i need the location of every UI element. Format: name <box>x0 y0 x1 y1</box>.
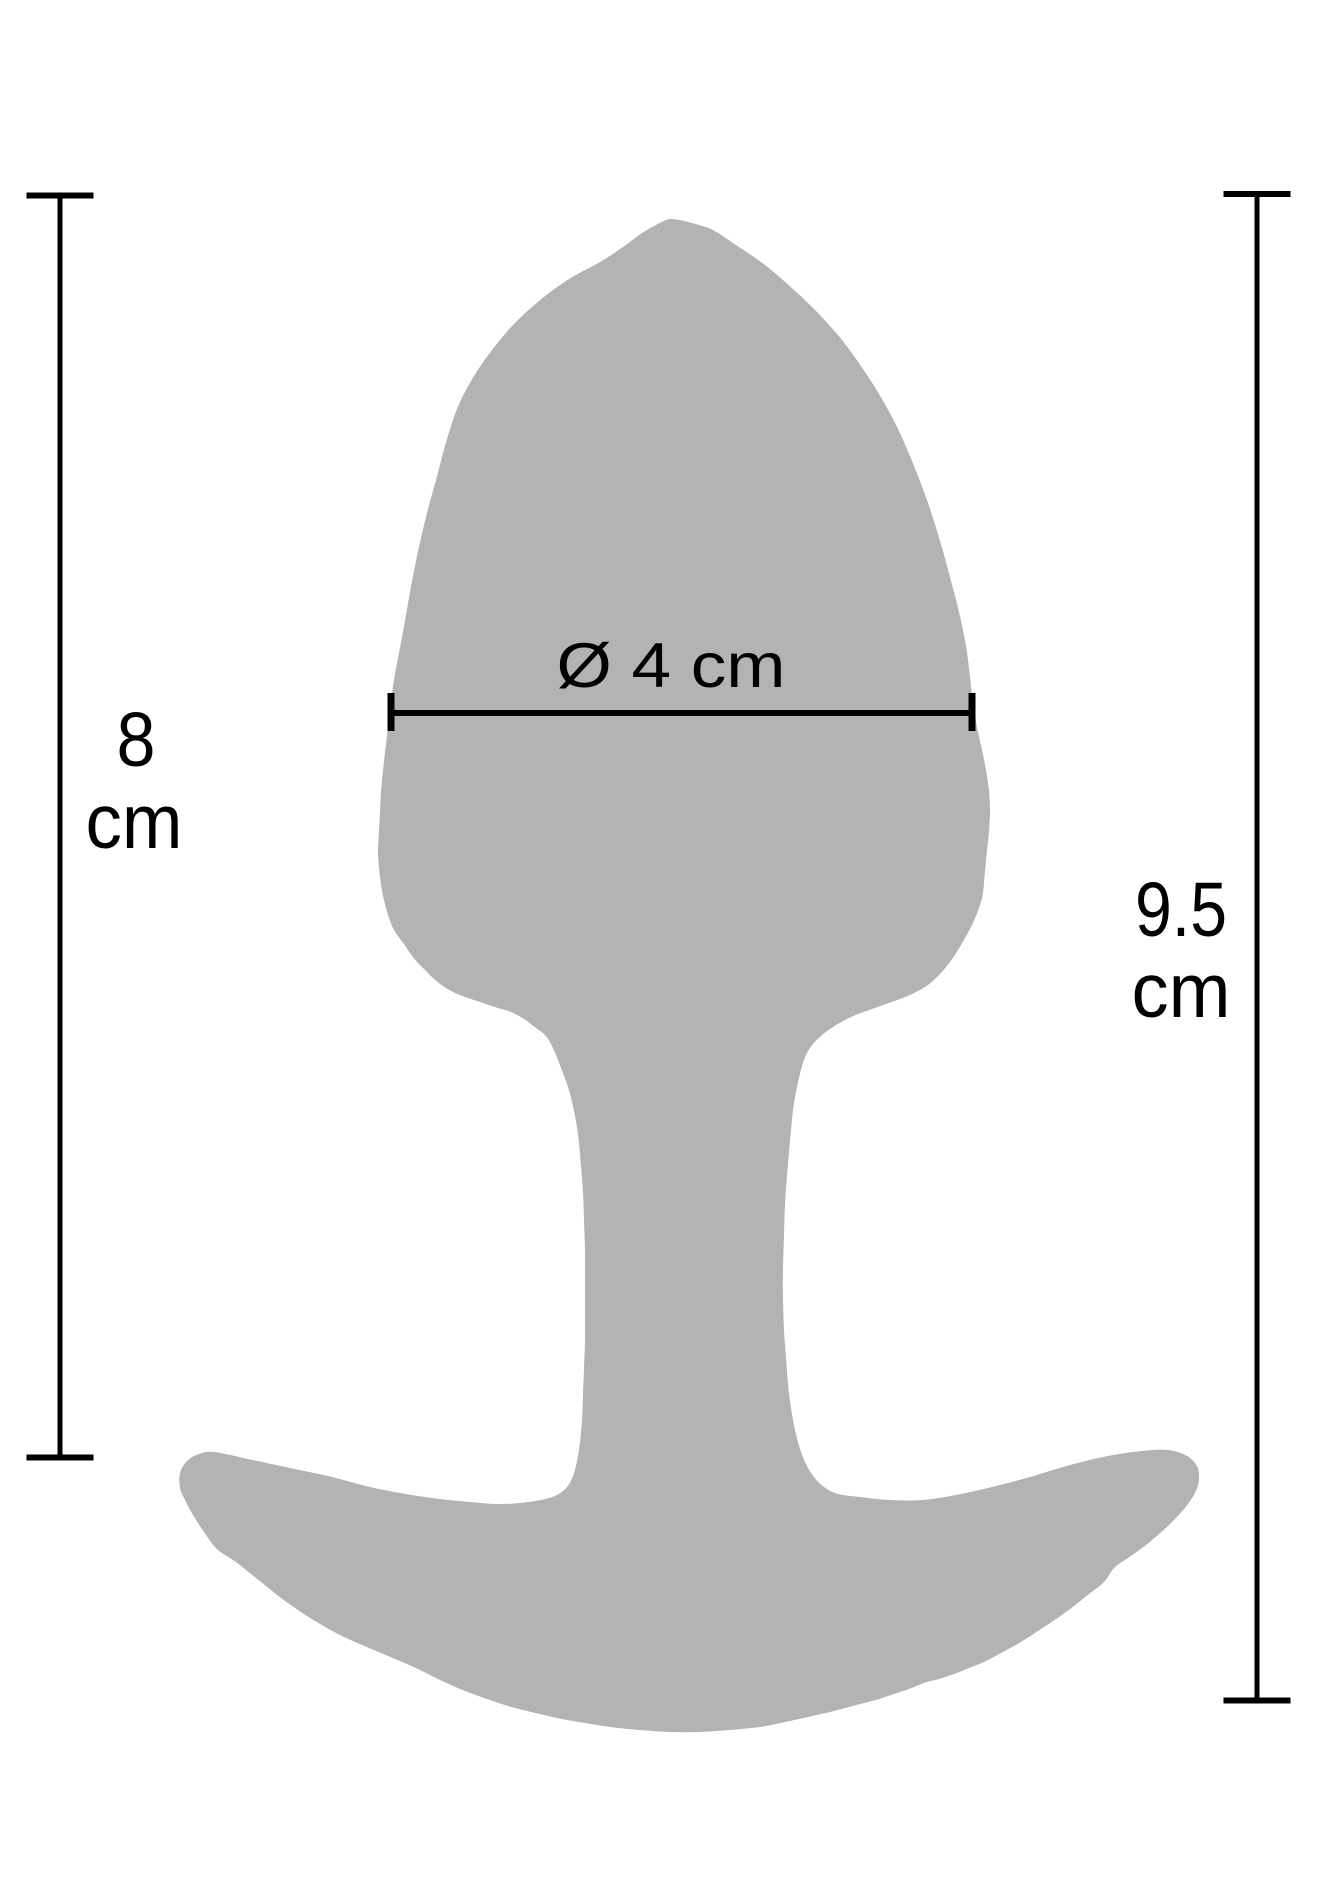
svg-text:cm: cm <box>1132 948 1231 1034</box>
svg-text:8: 8 <box>117 697 156 783</box>
svg-text:9.5: 9.5 <box>1135 867 1227 953</box>
svg-text:Ø 4 cm: Ø 4 cm <box>557 631 786 701</box>
svg-text:cm: cm <box>86 779 183 865</box>
